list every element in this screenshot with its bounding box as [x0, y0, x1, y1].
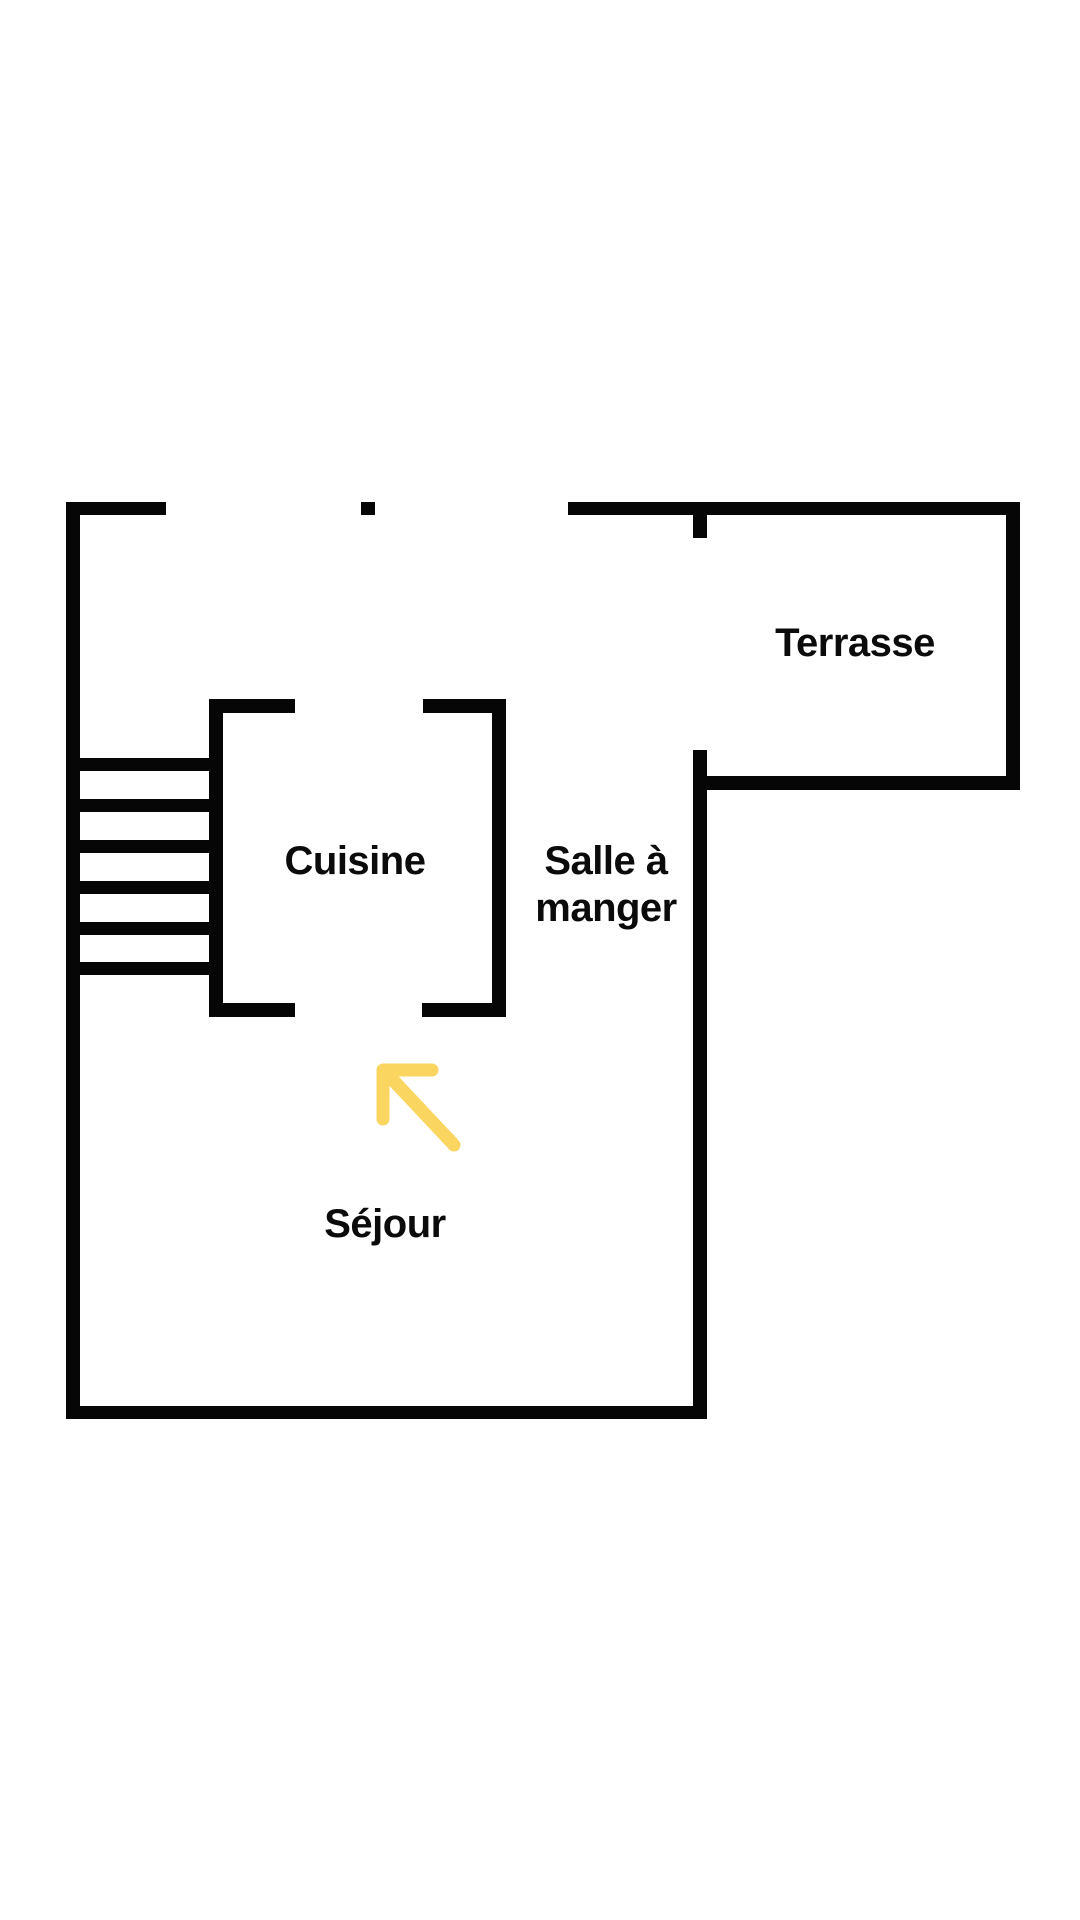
room-label-salle-a-manger-line2: manger: [535, 886, 677, 930]
wall-top-door-tick: [361, 502, 375, 515]
stair-tread: [80, 962, 209, 975]
room-labels: Terrasse Cuisine Salle à manger Séjour: [285, 621, 935, 1246]
wall-cuisine-top-left-stub: [209, 699, 295, 713]
stairs: [80, 758, 209, 975]
wall-left: [66, 502, 80, 1419]
wall-terrasse-door-post: [693, 515, 707, 538]
stair-tread: [80, 840, 209, 853]
stair-tread: [80, 799, 209, 812]
floor-plan-drawing: Terrasse Cuisine Salle à manger Séjour: [0, 0, 1080, 1920]
room-label-cuisine: Cuisine: [285, 839, 426, 883]
floor-plan-page: Terrasse Cuisine Salle à manger Séjour: [0, 0, 1080, 1920]
wall-cuisine-right: [492, 699, 506, 1017]
wall-terrasse-right: [1006, 502, 1020, 790]
arrow-shaft: [392, 1079, 454, 1145]
room-label-sejour: Séjour: [324, 1202, 445, 1246]
wall-cuisine-left: [209, 699, 223, 1017]
wall-cuisine-top-right-stub: [423, 699, 506, 713]
room-label-terrasse: Terrasse: [775, 621, 935, 665]
stair-tread: [80, 922, 209, 935]
direction-arrow: [383, 1070, 454, 1145]
wall-cuisine-bottom-right-stub: [422, 1003, 506, 1017]
wall-top-left-stub: [66, 502, 166, 515]
room-label-salle-a-manger-line1: Salle à: [544, 839, 669, 883]
wall-dining-right: [693, 750, 707, 1419]
stair-tread: [80, 758, 209, 771]
wall-top-right: [568, 502, 1020, 515]
wall-cuisine-bottom-left-stub: [209, 1003, 295, 1017]
stair-tread: [80, 881, 209, 894]
wall-bottom: [66, 1406, 707, 1419]
wall-terrasse-bottom: [693, 776, 1020, 790]
